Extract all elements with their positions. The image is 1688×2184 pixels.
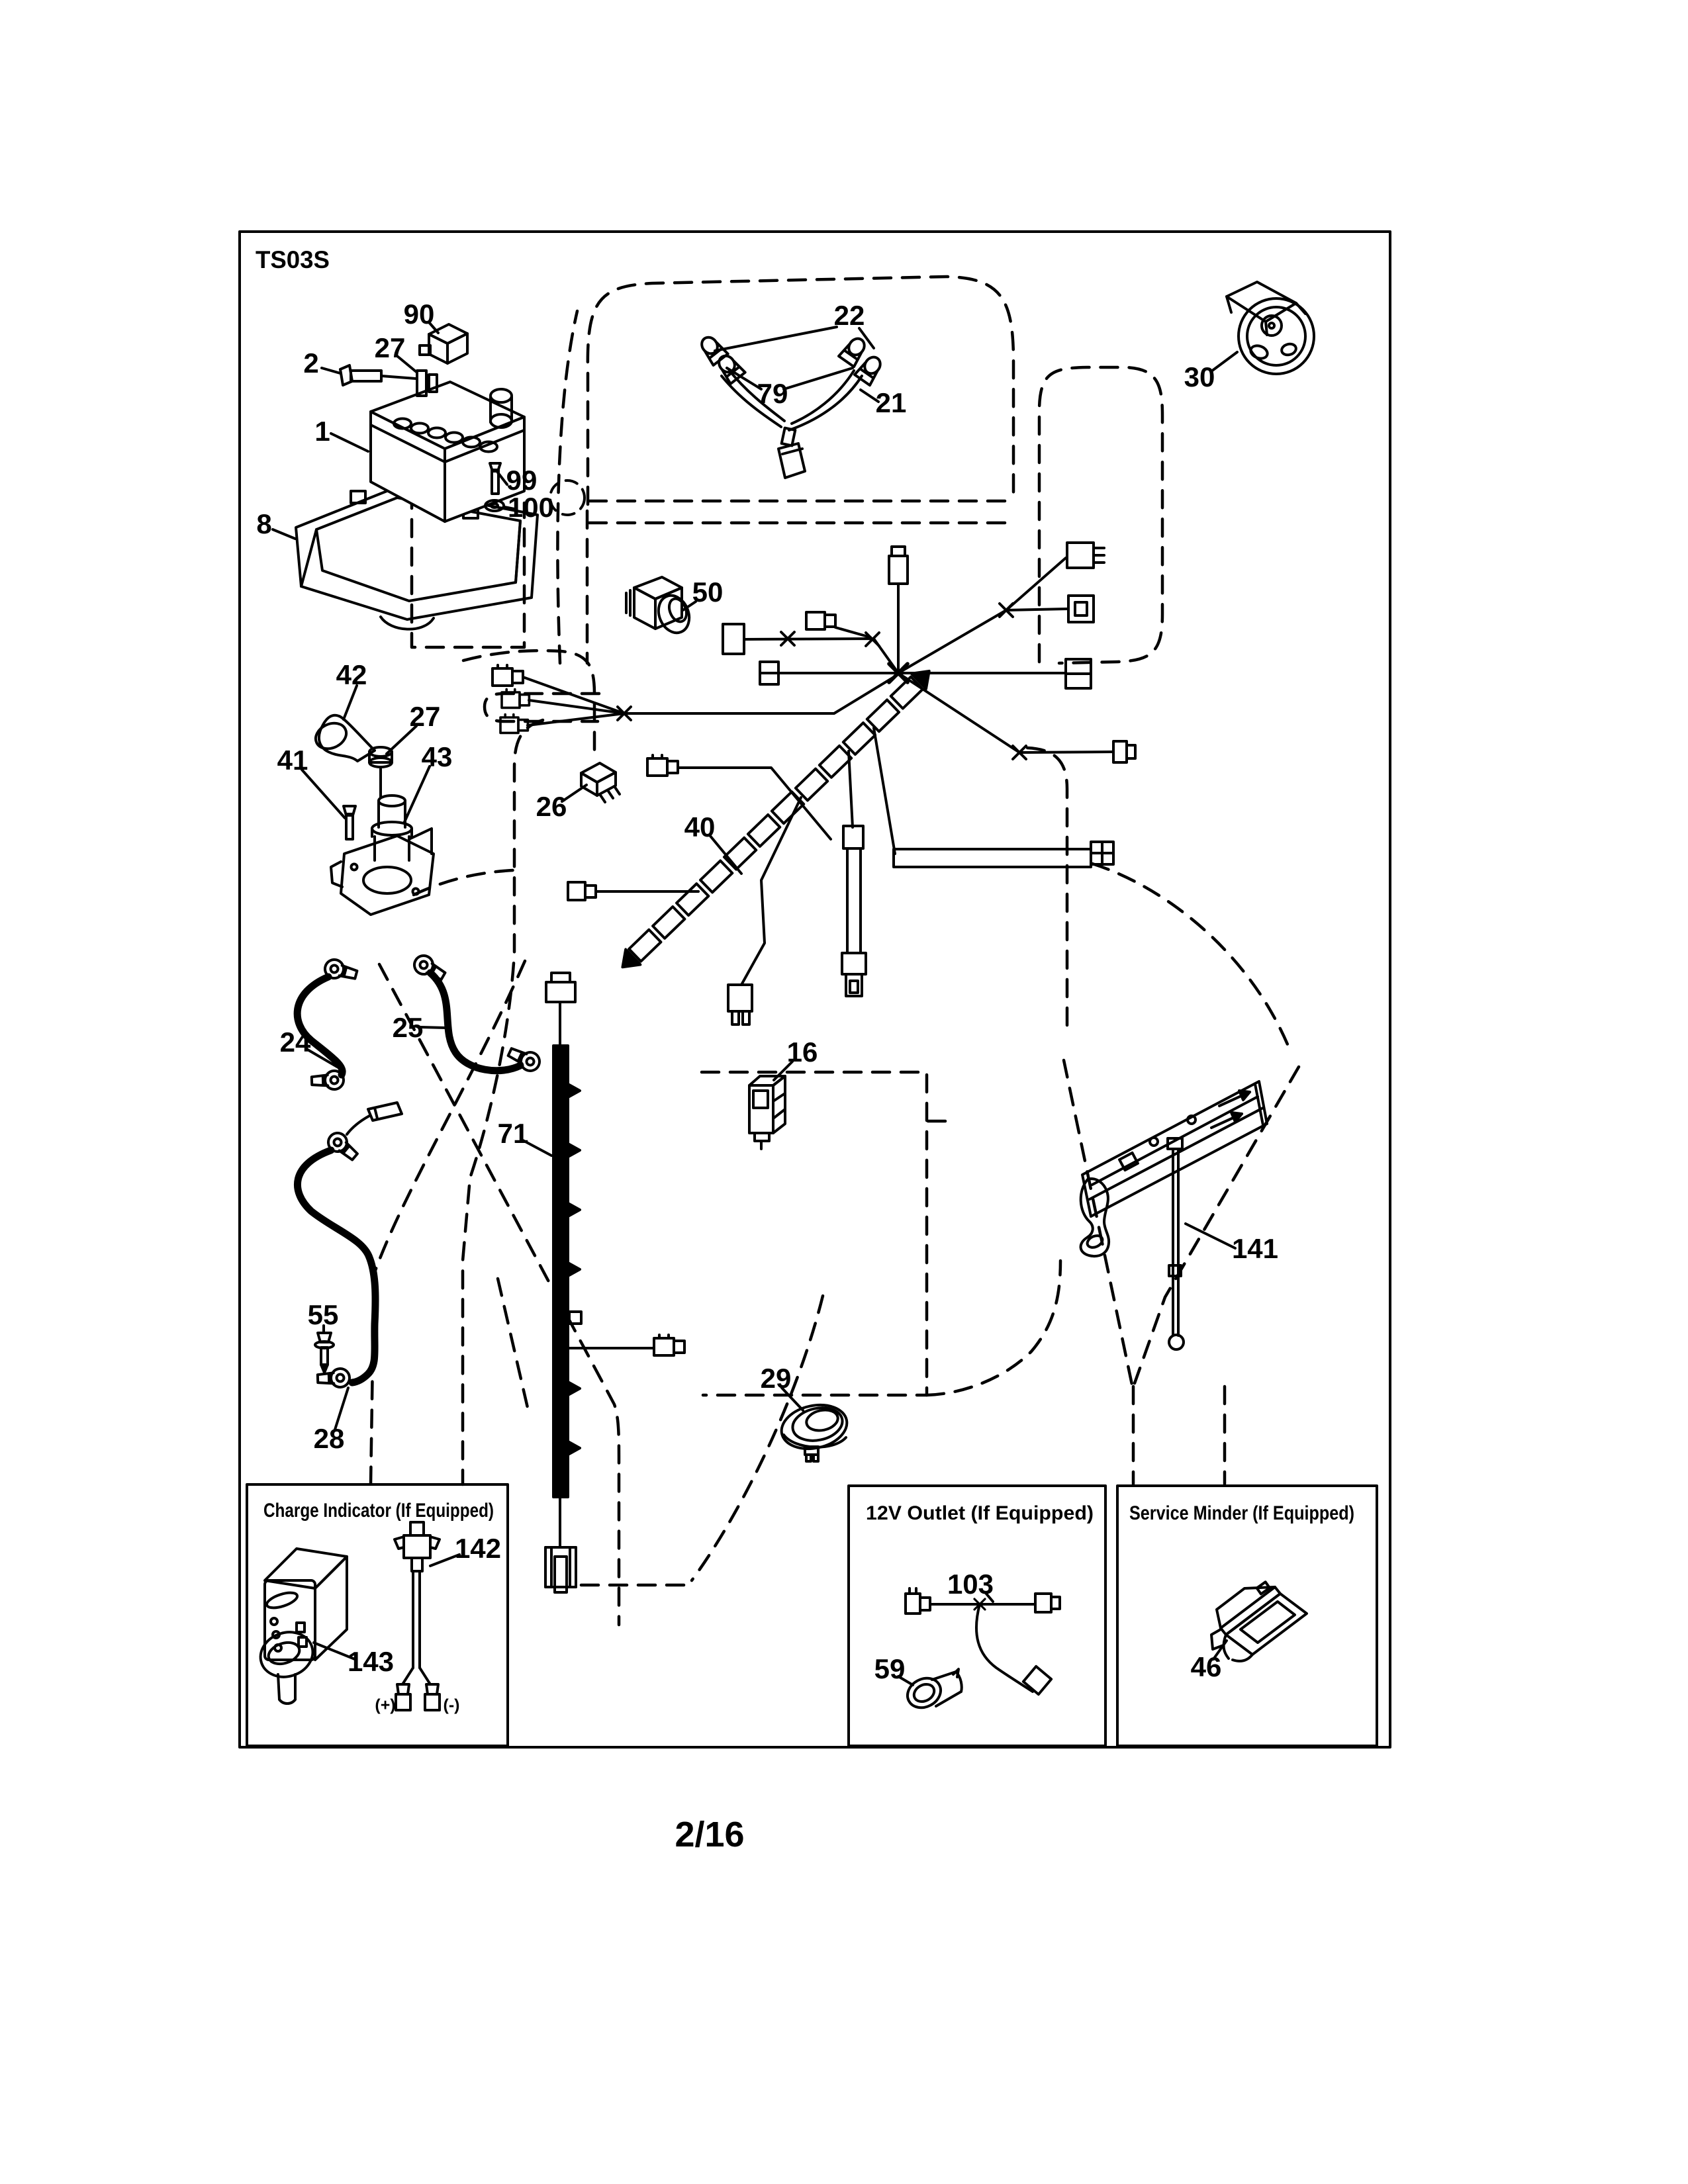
ignition-switch-group: 30 xyxy=(1184,282,1314,392)
parts-diagram-page: TS03S xyxy=(0,0,1688,2184)
callout-28: 28 xyxy=(314,1423,345,1454)
callout-40: 40 xyxy=(684,811,716,842)
solenoid-group: 42 27 41 43 xyxy=(277,659,453,915)
main-harness-group: 40 xyxy=(568,663,1113,1024)
callout-2: 2 xyxy=(303,347,318,379)
callout-22: 22 xyxy=(834,300,865,331)
callout-21: 21 xyxy=(876,387,907,418)
callout-30: 30 xyxy=(1184,361,1215,392)
inset-title-charge-indicator: Charge Indicator (If Equipped) xyxy=(263,1500,494,1522)
callout-16: 16 xyxy=(787,1036,818,1068)
battery-cables-group: 24 25 xyxy=(280,952,543,1090)
callout-26: 26 xyxy=(536,791,567,822)
rod-bracket-group: 141 xyxy=(1081,1081,1278,1349)
callout-90: 90 xyxy=(404,298,435,330)
inset-charge-indicator: Charge Indicator (If Equipped) 143 142 (… xyxy=(247,1484,508,1746)
label-negative: (-) xyxy=(444,1696,460,1715)
callout-41: 41 xyxy=(277,745,308,776)
callout-55: 55 xyxy=(308,1299,339,1330)
connector-trio-group xyxy=(485,665,898,733)
callout-143: 143 xyxy=(348,1646,394,1677)
callout-29: 29 xyxy=(761,1363,792,1394)
callout-142: 142 xyxy=(455,1533,501,1564)
inset-service-minder: Service Minder (If Equipped) 46 xyxy=(1117,1486,1377,1746)
callout-141: 141 xyxy=(1232,1233,1278,1264)
inset-title-service-minder: Service Minder (If Equipped) xyxy=(1129,1502,1354,1524)
callout-42: 42 xyxy=(336,659,367,690)
callout-71: 71 xyxy=(498,1118,529,1149)
callout-50: 50 xyxy=(692,576,724,608)
callout-99: 99 xyxy=(506,465,538,496)
battery-group: 1 2 27 90 99 100 8 xyxy=(256,298,554,629)
callout-103: 103 xyxy=(947,1569,994,1600)
plunger-switch-group: 50 xyxy=(626,576,723,637)
callout-100: 100 xyxy=(508,492,554,523)
callout-25: 25 xyxy=(393,1012,424,1043)
callout-43: 43 xyxy=(422,741,453,772)
callout-59: 59 xyxy=(874,1653,906,1684)
label-positive: (+) xyxy=(375,1696,395,1715)
inset-12v-outlet: 12V Outlet (If Equipped) 103 59 xyxy=(849,1486,1105,1746)
callout-46: 46 xyxy=(1191,1651,1222,1682)
page-number: 2/16 xyxy=(675,1815,744,1854)
ground-cable-group: 55 28 xyxy=(297,1103,402,1454)
callout-27a: 27 xyxy=(375,332,406,363)
interlock-switch-group: 16 xyxy=(749,1036,818,1149)
inset-title-12v-outlet: 12V Outlet (If Equipped) xyxy=(866,1502,1094,1524)
callout-27b: 27 xyxy=(410,701,441,732)
headlight-harness-group: 22 79 21 xyxy=(697,300,906,478)
diagram-canvas: TS03S xyxy=(0,0,1688,2184)
callout-24: 24 xyxy=(280,1026,311,1058)
callout-79: 79 xyxy=(757,378,788,409)
callout-1: 1 xyxy=(314,416,330,447)
sheet-code: TS03S xyxy=(256,246,330,273)
callout-8: 8 xyxy=(256,508,271,539)
harness-hub-group xyxy=(723,543,1135,762)
